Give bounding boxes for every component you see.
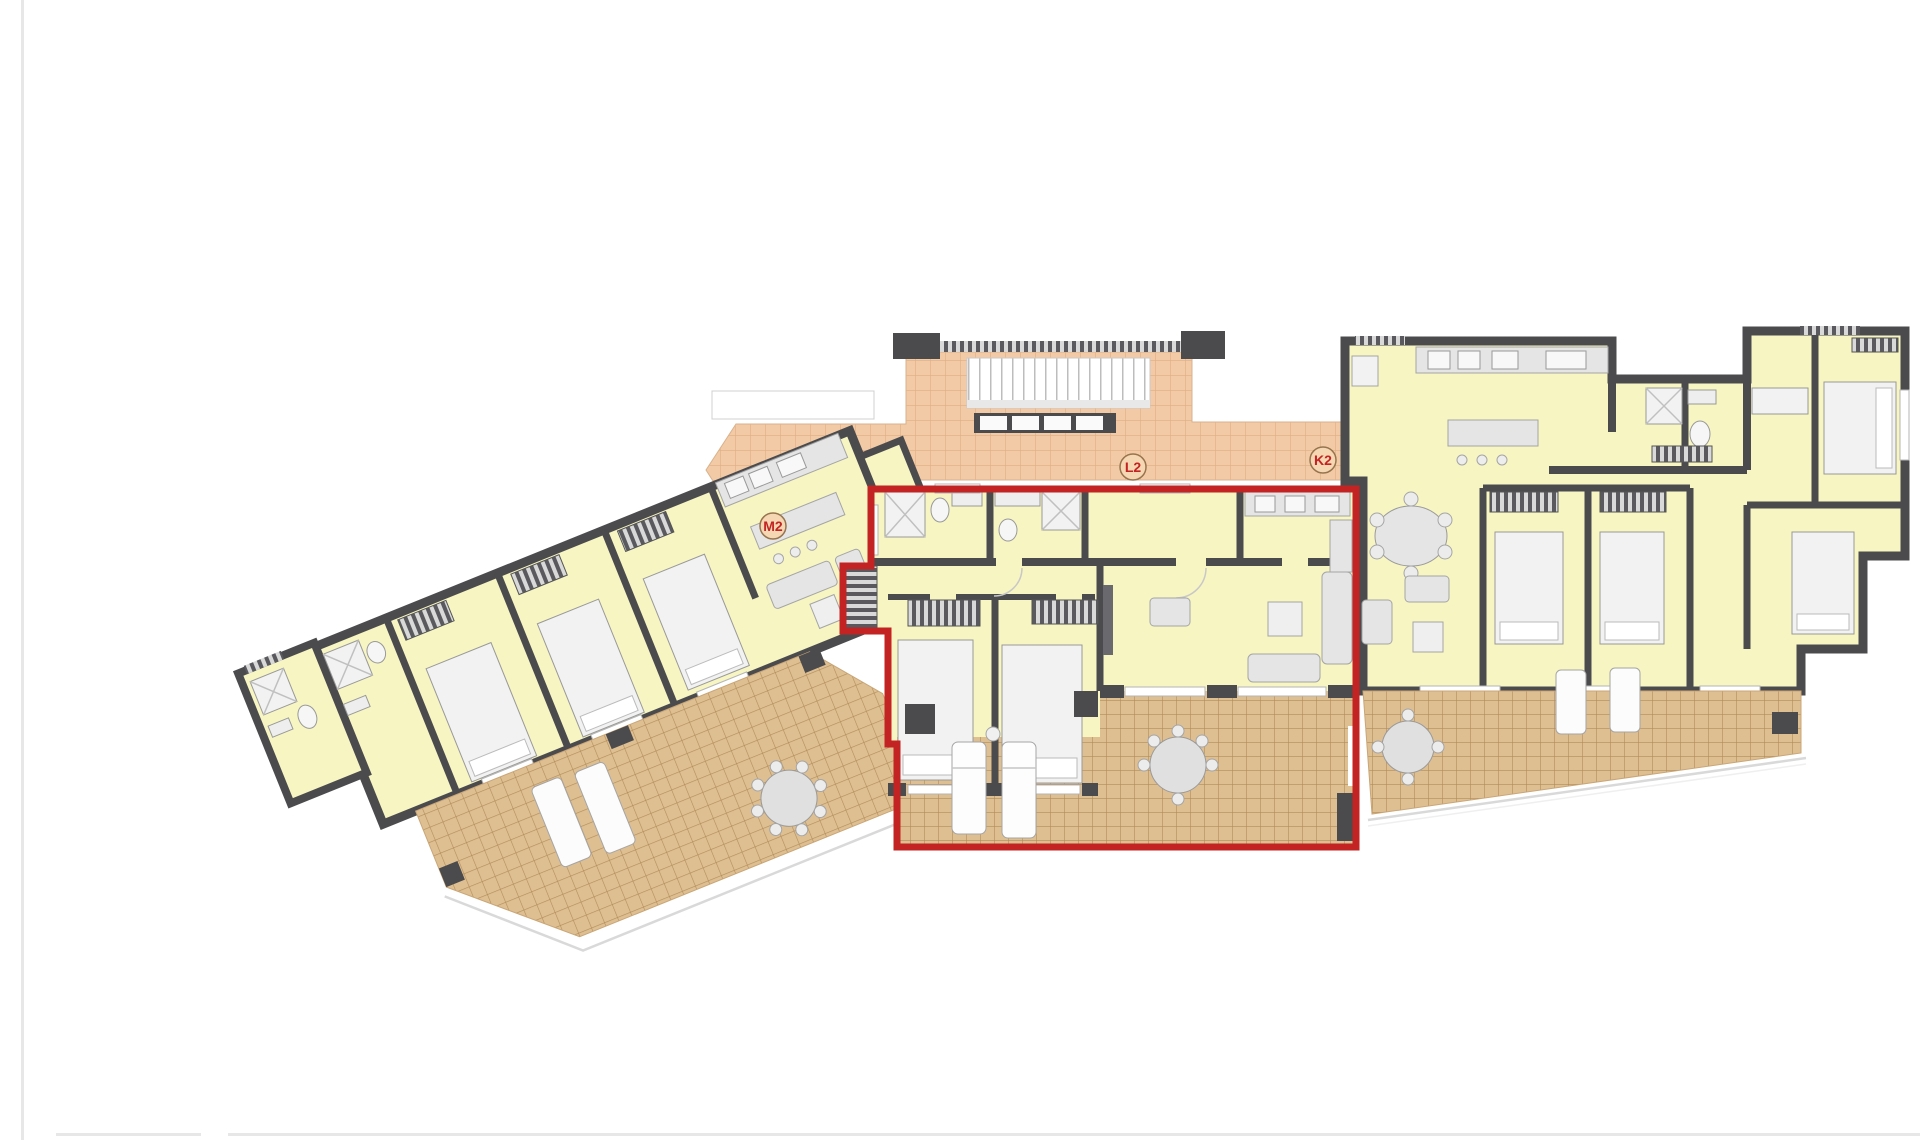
roof-block-left bbox=[893, 333, 940, 359]
sun-lounger bbox=[952, 742, 986, 834]
coffee-table bbox=[1413, 622, 1443, 652]
wall-block bbox=[1100, 685, 1124, 698]
unit-label-m2: M2 bbox=[760, 513, 786, 539]
window-hatch bbox=[1800, 326, 1860, 335]
armchair bbox=[1150, 598, 1190, 626]
window bbox=[1125, 687, 1205, 696]
planter-window bbox=[1012, 416, 1039, 430]
floor-plan-canvas: M2 L2 K2 bbox=[0, 0, 1920, 1140]
bed-pillow bbox=[1797, 614, 1849, 630]
unit-label-l2: L2 bbox=[1120, 454, 1146, 480]
dining-table bbox=[1375, 506, 1447, 566]
planter-window bbox=[1044, 416, 1071, 430]
kitchen-appliance bbox=[1428, 351, 1450, 369]
sun-lounger bbox=[1610, 668, 1640, 732]
roof-block-right bbox=[1181, 331, 1225, 359]
terrace-chair bbox=[1402, 773, 1414, 785]
planter-window bbox=[1076, 416, 1103, 430]
dining-chair bbox=[1438, 513, 1452, 527]
unit-label-k2: K2 bbox=[1310, 447, 1336, 473]
bed-pillow bbox=[1876, 388, 1892, 468]
kitchen-sink bbox=[1315, 496, 1339, 512]
sink bbox=[952, 492, 982, 506]
armchair bbox=[1405, 576, 1449, 602]
terrace-chair bbox=[1402, 709, 1414, 721]
right-apartment bbox=[1345, 326, 1909, 826]
kitchen-island bbox=[1448, 420, 1538, 446]
kitchen-hob bbox=[1546, 351, 1586, 369]
window bbox=[1238, 687, 1326, 696]
hall-wardrobe bbox=[845, 566, 877, 628]
terrace-chair bbox=[1148, 735, 1160, 747]
dining-chair bbox=[1370, 513, 1384, 527]
window-hatch-strip bbox=[940, 341, 1181, 352]
hall-wardrobe bbox=[1652, 446, 1712, 462]
dining-chair bbox=[1370, 545, 1384, 559]
wardrobe bbox=[1032, 600, 1098, 624]
door-opening bbox=[996, 556, 1022, 568]
terrace-chair bbox=[1196, 735, 1208, 747]
toilet bbox=[931, 498, 949, 522]
bed-pillow bbox=[1500, 622, 1558, 640]
sun-lounger bbox=[1002, 742, 1036, 838]
wall-block bbox=[1207, 685, 1237, 698]
door-opening bbox=[1176, 556, 1206, 568]
wall-block bbox=[1772, 712, 1798, 734]
window-hatch bbox=[1355, 336, 1405, 345]
unit-label-text: K2 bbox=[1314, 452, 1332, 468]
sun-lounger bbox=[1556, 670, 1586, 734]
terrace-table bbox=[1382, 721, 1434, 773]
kitchen-appliance bbox=[1255, 496, 1275, 512]
bathtub bbox=[1752, 388, 1808, 414]
sink bbox=[995, 492, 1040, 506]
tv-unit bbox=[1103, 585, 1113, 655]
highlighted-unit bbox=[843, 484, 1361, 847]
kitchen-sink bbox=[1492, 351, 1518, 369]
bed-pillow bbox=[1605, 622, 1659, 640]
wardrobe bbox=[908, 600, 980, 626]
white-parapet bbox=[712, 391, 874, 419]
bar-stool bbox=[1457, 455, 1467, 465]
window bbox=[1900, 390, 1909, 460]
sink bbox=[1688, 390, 1716, 404]
wardrobe bbox=[1490, 492, 1558, 512]
wardrobe bbox=[1852, 338, 1898, 352]
kitchen-counter bbox=[1330, 520, 1352, 572]
toilet bbox=[1690, 421, 1710, 447]
wall-block bbox=[1337, 793, 1353, 841]
unit-label-text: L2 bbox=[1125, 459, 1142, 475]
wall-block bbox=[1328, 685, 1354, 698]
unit-label-text: M2 bbox=[763, 518, 783, 534]
dining-chair bbox=[1438, 545, 1452, 559]
terrace-chair bbox=[1206, 759, 1218, 771]
sofa bbox=[1322, 572, 1352, 664]
sofa bbox=[1362, 600, 1392, 644]
bar-stool bbox=[1477, 455, 1487, 465]
sofa bbox=[1248, 654, 1320, 682]
terrace-chair bbox=[1172, 793, 1184, 805]
kitchen-appliance bbox=[1458, 351, 1480, 369]
door-opening bbox=[1282, 556, 1308, 568]
terrace-chair bbox=[1372, 741, 1384, 753]
terrace-chair bbox=[1432, 741, 1444, 753]
wardrobe bbox=[1600, 492, 1666, 512]
terrace-chair bbox=[1138, 759, 1150, 771]
toilet bbox=[999, 519, 1017, 541]
bottom-page-border bbox=[228, 1133, 1920, 1136]
stair-landing bbox=[967, 400, 1150, 408]
bar-stool bbox=[1497, 455, 1507, 465]
terrace-chair bbox=[1172, 725, 1184, 737]
dining-chair bbox=[1404, 492, 1418, 506]
planter-window bbox=[980, 416, 1007, 430]
floor-plan-page: M2 L2 K2 bbox=[0, 0, 1920, 1140]
wall-block bbox=[905, 704, 935, 734]
coffee-table bbox=[1268, 602, 1302, 636]
kitchen-appliance bbox=[1285, 496, 1305, 512]
left-page-border bbox=[21, 0, 24, 1140]
wall-block bbox=[1082, 783, 1098, 796]
side-table bbox=[986, 727, 1000, 741]
washing-machine bbox=[1352, 356, 1378, 386]
bottom-page-border bbox=[56, 1133, 201, 1136]
wall-block bbox=[1074, 691, 1098, 717]
